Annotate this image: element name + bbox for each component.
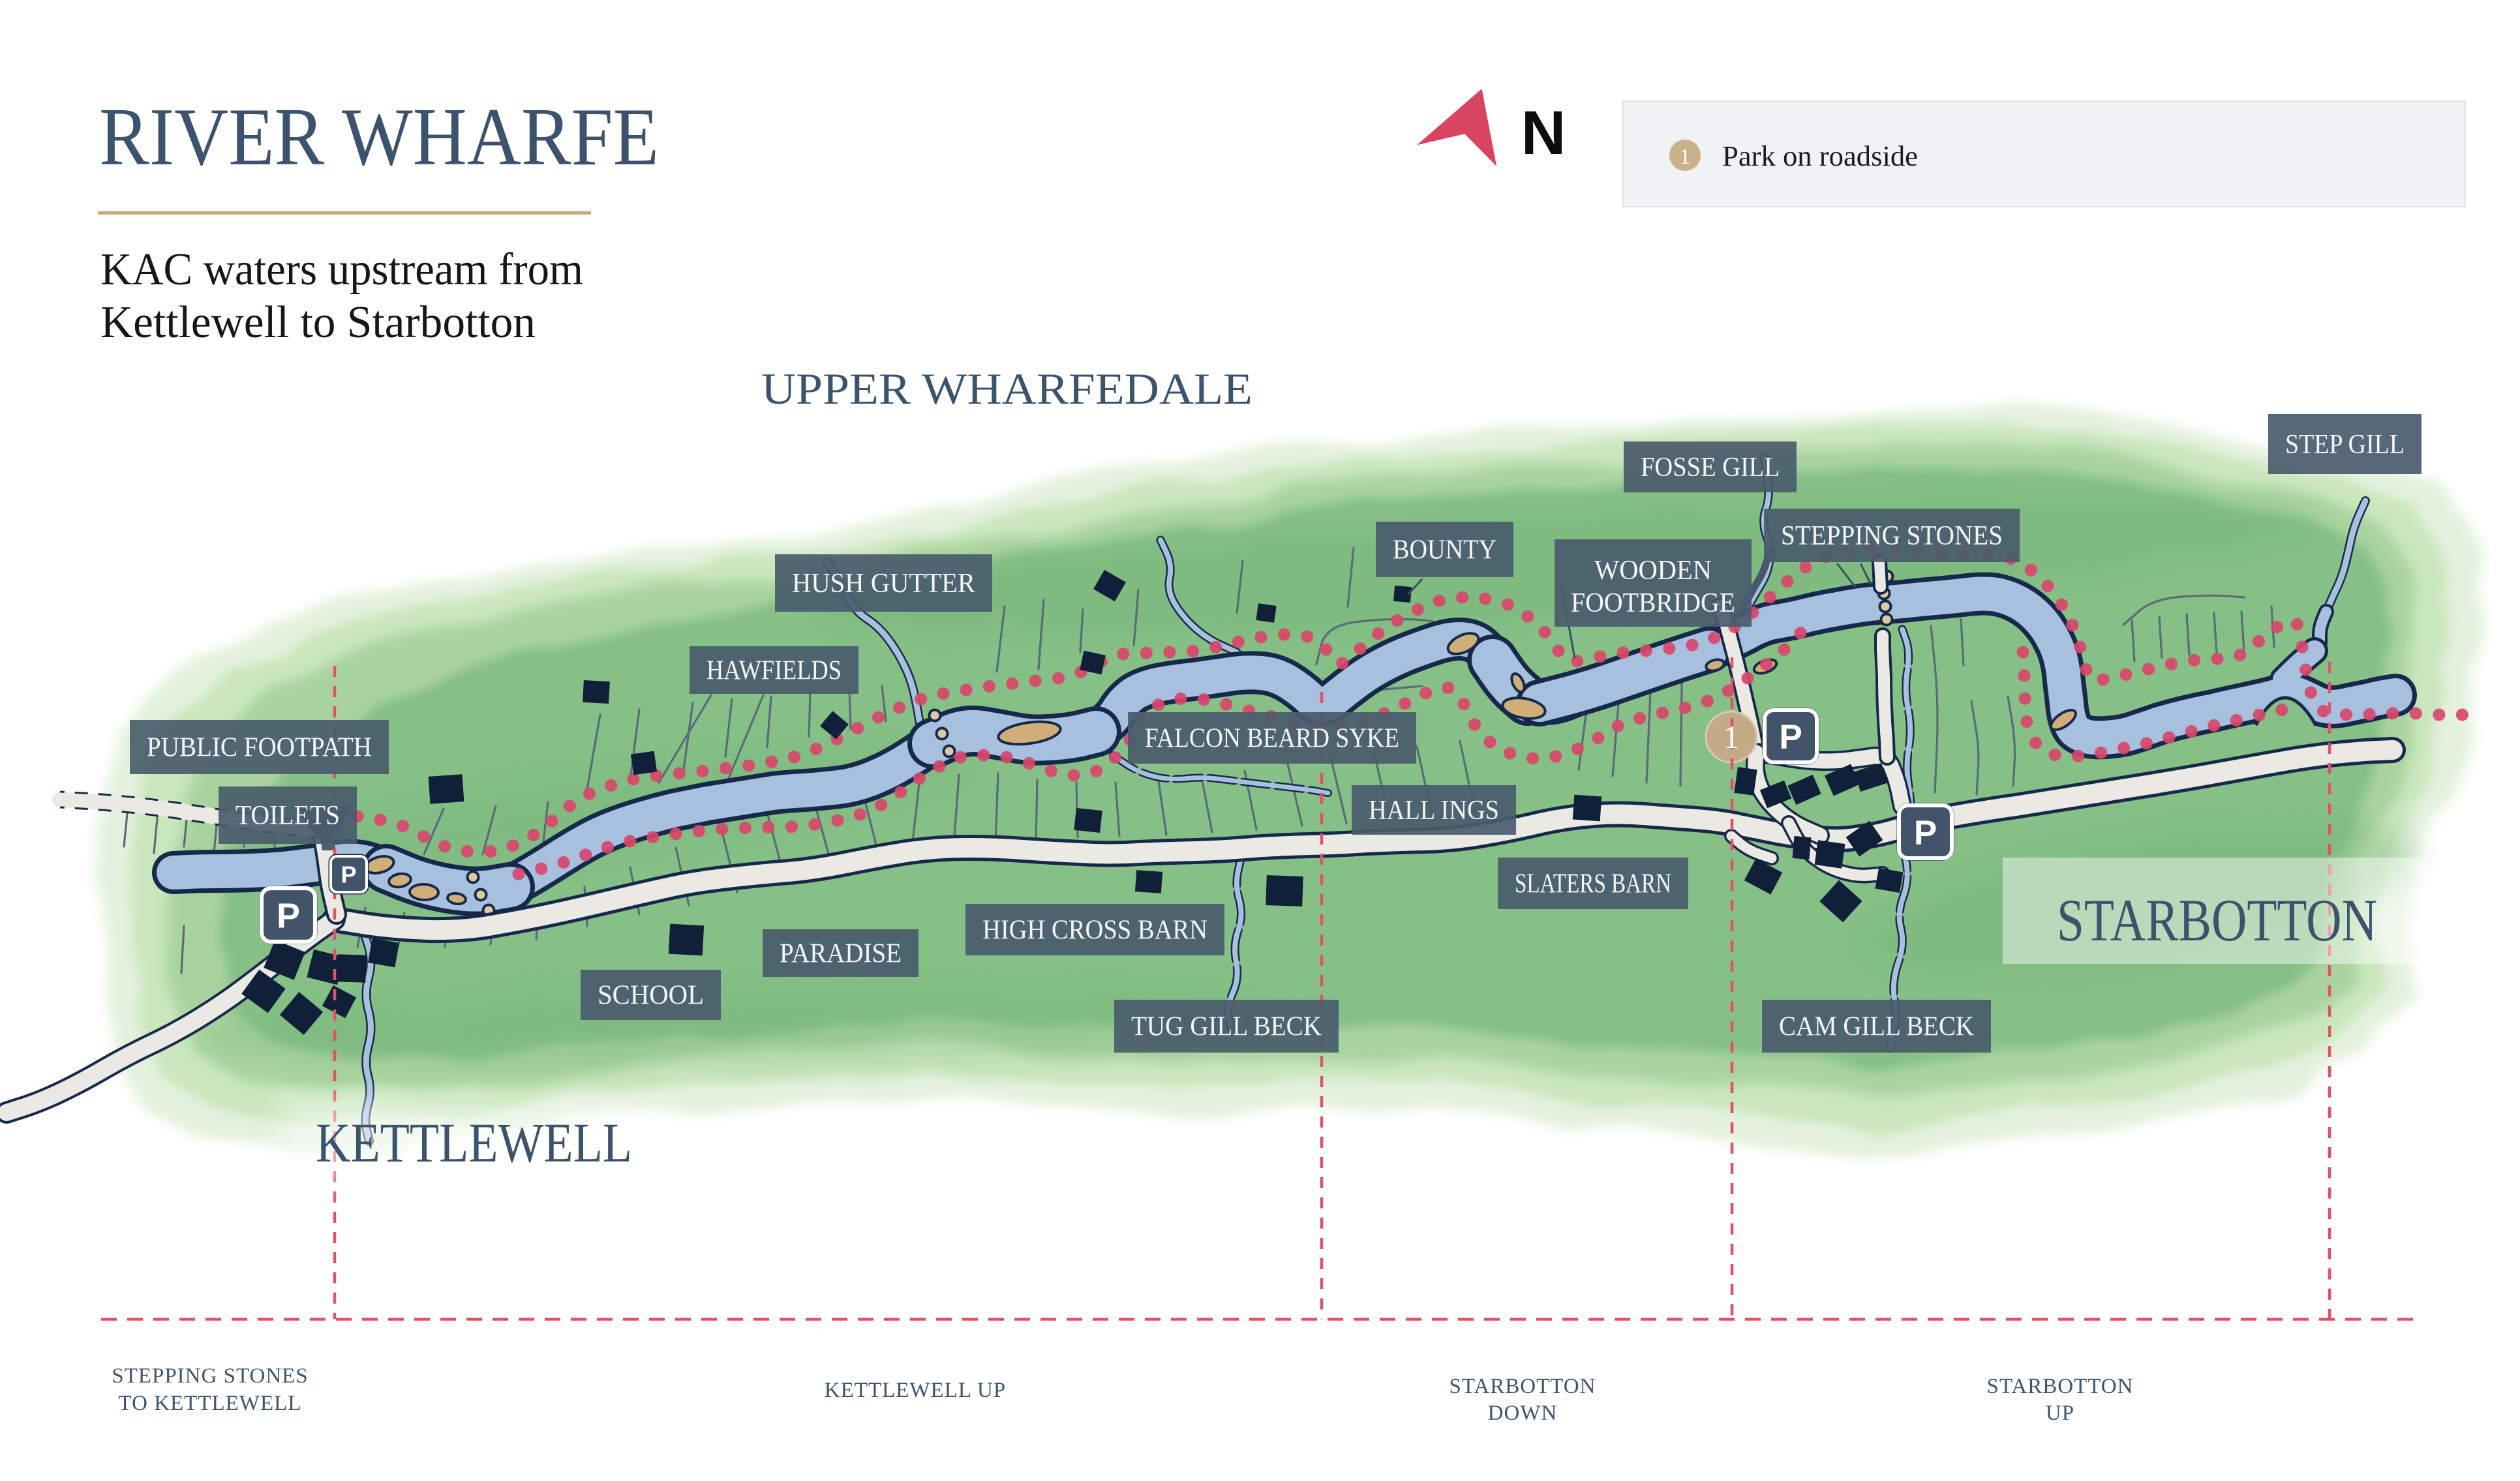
svg-text:FOOTBRIDGE: FOOTBRIDGE <box>1571 588 1735 618</box>
svg-text:SLATERS BARN: SLATERS BARN <box>1515 869 1671 899</box>
svg-text:CAM GILL BECK: CAM GILL BECK <box>1779 1012 1974 1042</box>
svg-text:STARBOTTON: STARBOTTON <box>1450 1375 1596 1398</box>
svg-text:TOILETS: TOILETS <box>235 801 340 831</box>
svg-text:BOUNTY: BOUNTY <box>1393 535 1496 565</box>
svg-text:FALCON BEARD SYKE: FALCON BEARD SYKE <box>1145 724 1399 754</box>
svg-text:P: P <box>277 897 300 936</box>
svg-text:STARBOTTON: STARBOTTON <box>2057 887 2377 953</box>
svg-text:RIVER WHARFE: RIVER WHARFE <box>99 92 659 183</box>
svg-text:STEPPING STONES: STEPPING STONES <box>1781 521 2003 551</box>
svg-text:Kettlewell to Starbotton: Kettlewell to Starbotton <box>100 297 536 348</box>
svg-text:Park on roadside: Park on roadside <box>1722 140 1918 172</box>
svg-text:HIGH CROSS BARN: HIGH CROSS BARN <box>982 916 1207 946</box>
svg-text:PARADISE: PARADISE <box>780 939 902 969</box>
svg-text:STARBOTTON: STARBOTTON <box>1987 1375 2134 1398</box>
svg-text:FOSSE GILL: FOSSE GILL <box>1641 453 1780 483</box>
svg-text:STEP GILL: STEP GILL <box>2285 430 2405 460</box>
svg-text:UPPER WHARFEDALE: UPPER WHARFEDALE <box>761 364 1252 413</box>
svg-text:P: P <box>341 861 356 888</box>
svg-text:1: 1 <box>1723 719 1740 755</box>
svg-text:HUSH GUTTER: HUSH GUTTER <box>792 569 975 599</box>
svg-text:P: P <box>1779 718 1802 756</box>
svg-text:HALL INGS: HALL INGS <box>1369 796 1499 826</box>
svg-text:HAWFIELDS: HAWFIELDS <box>706 656 842 686</box>
svg-text:KAC waters upstream from: KAC waters upstream from <box>100 245 583 295</box>
svg-text:N: N <box>1521 98 1566 168</box>
svg-text:STEPPING STONES: STEPPING STONES <box>112 1364 308 1388</box>
svg-text:KETTLEWELL: KETTLEWELL <box>316 1111 632 1174</box>
svg-text:UP: UP <box>2046 1401 2074 1425</box>
svg-text:PUBLIC FOOTPATH: PUBLIC FOOTPATH <box>147 733 372 763</box>
svg-text:TUG GILL BECK: TUG GILL BECK <box>1131 1012 1322 1042</box>
svg-text:1: 1 <box>1680 145 1691 169</box>
svg-text:DOWN: DOWN <box>1488 1401 1558 1425</box>
svg-text:P: P <box>1914 814 1937 852</box>
svg-text:KETTLEWELL UP: KETTLEWELL UP <box>825 1379 1006 1402</box>
svg-text:TO KETTLEWELL: TO KETTLEWELL <box>119 1392 302 1415</box>
svg-text:SCHOOL: SCHOOL <box>598 981 704 1011</box>
svg-text:WOODEN: WOODEN <box>1594 556 1712 586</box>
